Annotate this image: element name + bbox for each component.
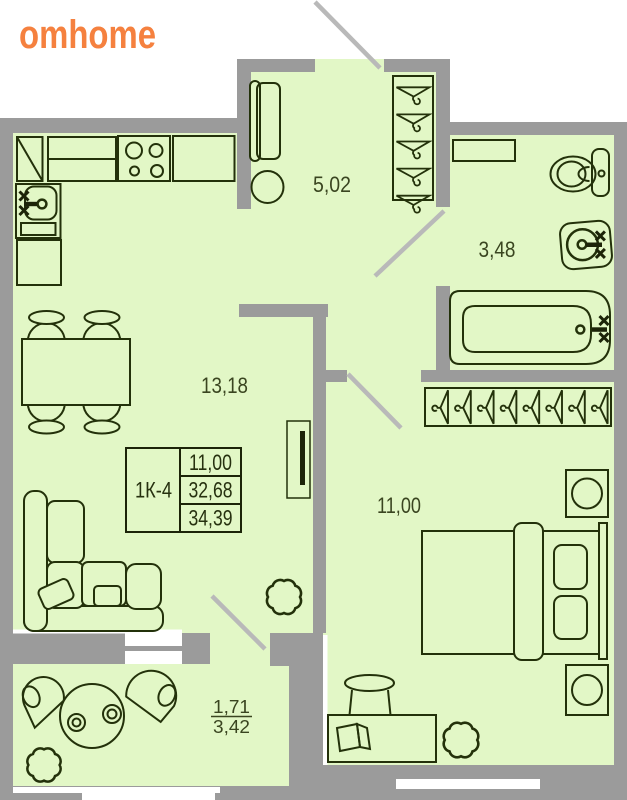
svg-text:32,68: 32,68 [189, 478, 233, 503]
svg-text:5,02: 5,02 [313, 172, 351, 197]
svg-text:3,48: 3,48 [479, 237, 516, 262]
svg-text:13,18: 13,18 [201, 373, 248, 398]
svg-text:1,71: 1,71 [213, 697, 250, 717]
svg-text:11,00: 11,00 [189, 450, 232, 475]
svg-text:1К-4: 1К-4 [135, 478, 172, 503]
svg-text:omhome: omhome [19, 13, 156, 57]
svg-text:11,00: 11,00 [377, 493, 421, 518]
svg-text:34,39: 34,39 [189, 506, 233, 531]
svg-text:3,42: 3,42 [213, 717, 250, 737]
